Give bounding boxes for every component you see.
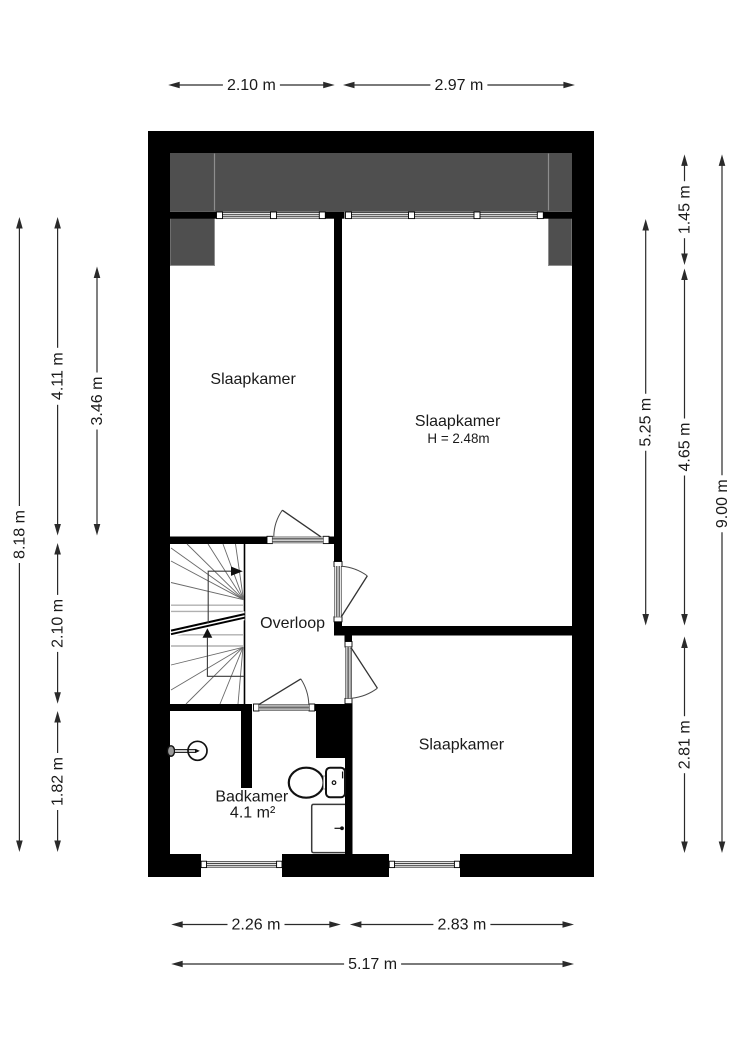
svg-text:4.11 m: 4.11 m (50, 352, 67, 400)
svg-text:2.10 m: 2.10 m (227, 77, 276, 94)
svg-text:Slaapkamer: Slaapkamer (210, 371, 296, 388)
svg-text:Slaapkamer: Slaapkamer (415, 413, 501, 430)
svg-text:3.46 m: 3.46 m (89, 377, 106, 426)
svg-text:1.82 m: 1.82 m (50, 757, 67, 806)
svg-text:4.65 m: 4.65 m (677, 423, 694, 472)
svg-text:Badkamer: Badkamer (215, 789, 289, 806)
svg-text:1.45 m: 1.45 m (677, 185, 694, 234)
svg-text:5.25 m: 5.25 m (638, 398, 655, 447)
svg-text:2.10 m: 2.10 m (50, 599, 67, 648)
svg-text:Slaapkamer: Slaapkamer (419, 737, 505, 754)
svg-text:8.18 m: 8.18 m (11, 510, 28, 559)
svg-text:2.81 m: 2.81 m (677, 720, 694, 769)
svg-text:5.17 m: 5.17 m (348, 956, 397, 973)
svg-text:2.97 m: 2.97 m (434, 77, 483, 94)
svg-text:4.1 m²: 4.1 m² (230, 804, 276, 821)
svg-text:9.00 m: 9.00 m (714, 479, 731, 528)
svg-text:H = 2.48m: H = 2.48m (427, 431, 489, 446)
svg-text:Overloop: Overloop (260, 615, 325, 632)
svg-text:2.26 m: 2.26 m (232, 917, 281, 934)
svg-text:2.83 m: 2.83 m (437, 917, 486, 934)
